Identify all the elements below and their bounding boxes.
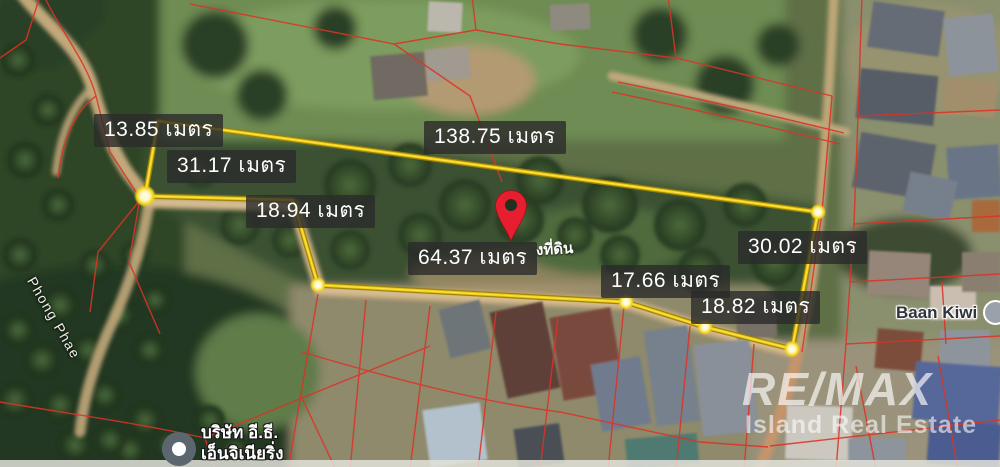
place-label-baan-kiwi: Baan Kiwi (896, 303, 977, 323)
measurement-label: 13.85 เมตร (94, 114, 223, 147)
satellite-map: 13.85 เมตร 31.17 เมตร 18.94 เมตร 138.75 … (0, 0, 1000, 467)
poi-label-line1: บริษัท อี.ธี. (201, 422, 283, 443)
measurement-label: 31.17 เมตร (167, 150, 296, 183)
land-watermark-text: งที่ดิน (535, 236, 573, 262)
remax-logo-watermark: RE/MAX (742, 366, 933, 412)
poi-label-line2: เอ็นจิเนียริ่ง (201, 443, 283, 464)
poi-pin-icon (162, 432, 196, 466)
remax-subtitle-watermark: Island Real Estate (745, 413, 977, 438)
measurement-label: 138.75 เมตร (424, 121, 566, 154)
measurement-label: 18.82 เมตร (691, 291, 820, 324)
poi-label: บริษัท อี.ธี. เอ็นจิเนียริ่ง (201, 422, 283, 465)
bottom-road-strip (0, 460, 1000, 467)
measurement-label: 64.37 เมตร (408, 242, 537, 275)
measurement-label: 30.02 เมตร (738, 231, 867, 264)
measurement-label: 18.94 เมตร (246, 195, 375, 228)
